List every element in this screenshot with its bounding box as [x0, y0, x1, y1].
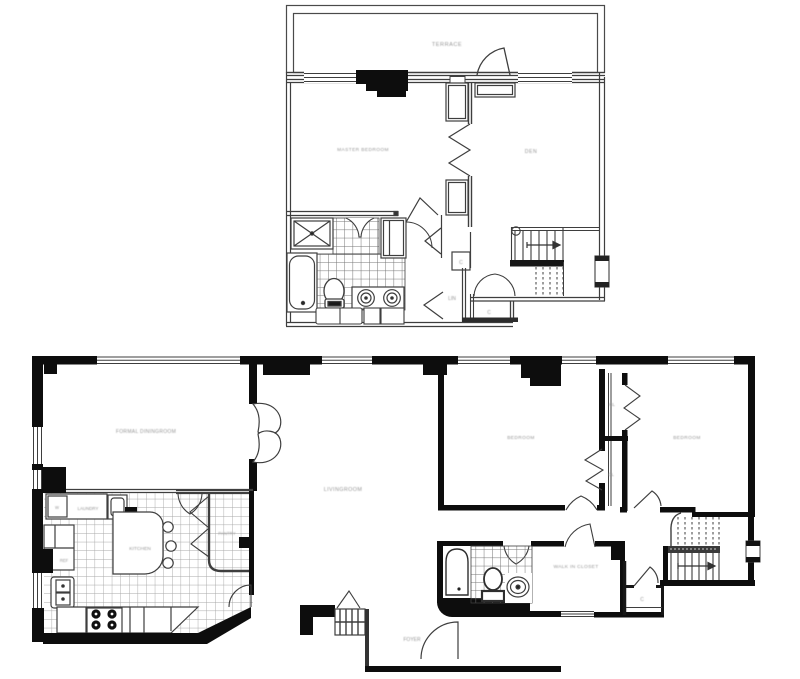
svg-text:W: W: [55, 505, 59, 510]
svg-text:REF: REF: [60, 558, 69, 563]
svg-text:FORMAL DININGROOM: FORMAL DININGROOM: [116, 429, 176, 435]
svg-text:C: C: [487, 310, 491, 316]
svg-text:TERRACE: TERRACE: [432, 42, 462, 48]
svg-text:WALK IN CLOSET: WALK IN CLOSET: [553, 564, 598, 570]
svg-text:LAUNDRY: LAUNDRY: [78, 506, 99, 511]
svg-text:LIN: LIN: [448, 296, 456, 302]
svg-text:C: C: [640, 597, 644, 603]
svg-text:BEDROOM: BEDROOM: [507, 435, 535, 441]
svg-text:LIVINGROOM: LIVINGROOM: [324, 487, 363, 493]
svg-text:PANTRY: PANTRY: [218, 531, 235, 536]
svg-text:CL: CL: [608, 472, 614, 477]
svg-text:FOYER: FOYER: [403, 637, 421, 643]
svg-text:BEDROOM: BEDROOM: [673, 435, 701, 441]
svg-text:DEN: DEN: [525, 149, 537, 155]
svg-text:CL: CL: [609, 402, 615, 407]
svg-text:KITCHEN: KITCHEN: [129, 546, 151, 552]
svg-text:C: C: [459, 260, 463, 266]
svg-text:MASTER BEDROOM: MASTER BEDROOM: [337, 147, 389, 153]
